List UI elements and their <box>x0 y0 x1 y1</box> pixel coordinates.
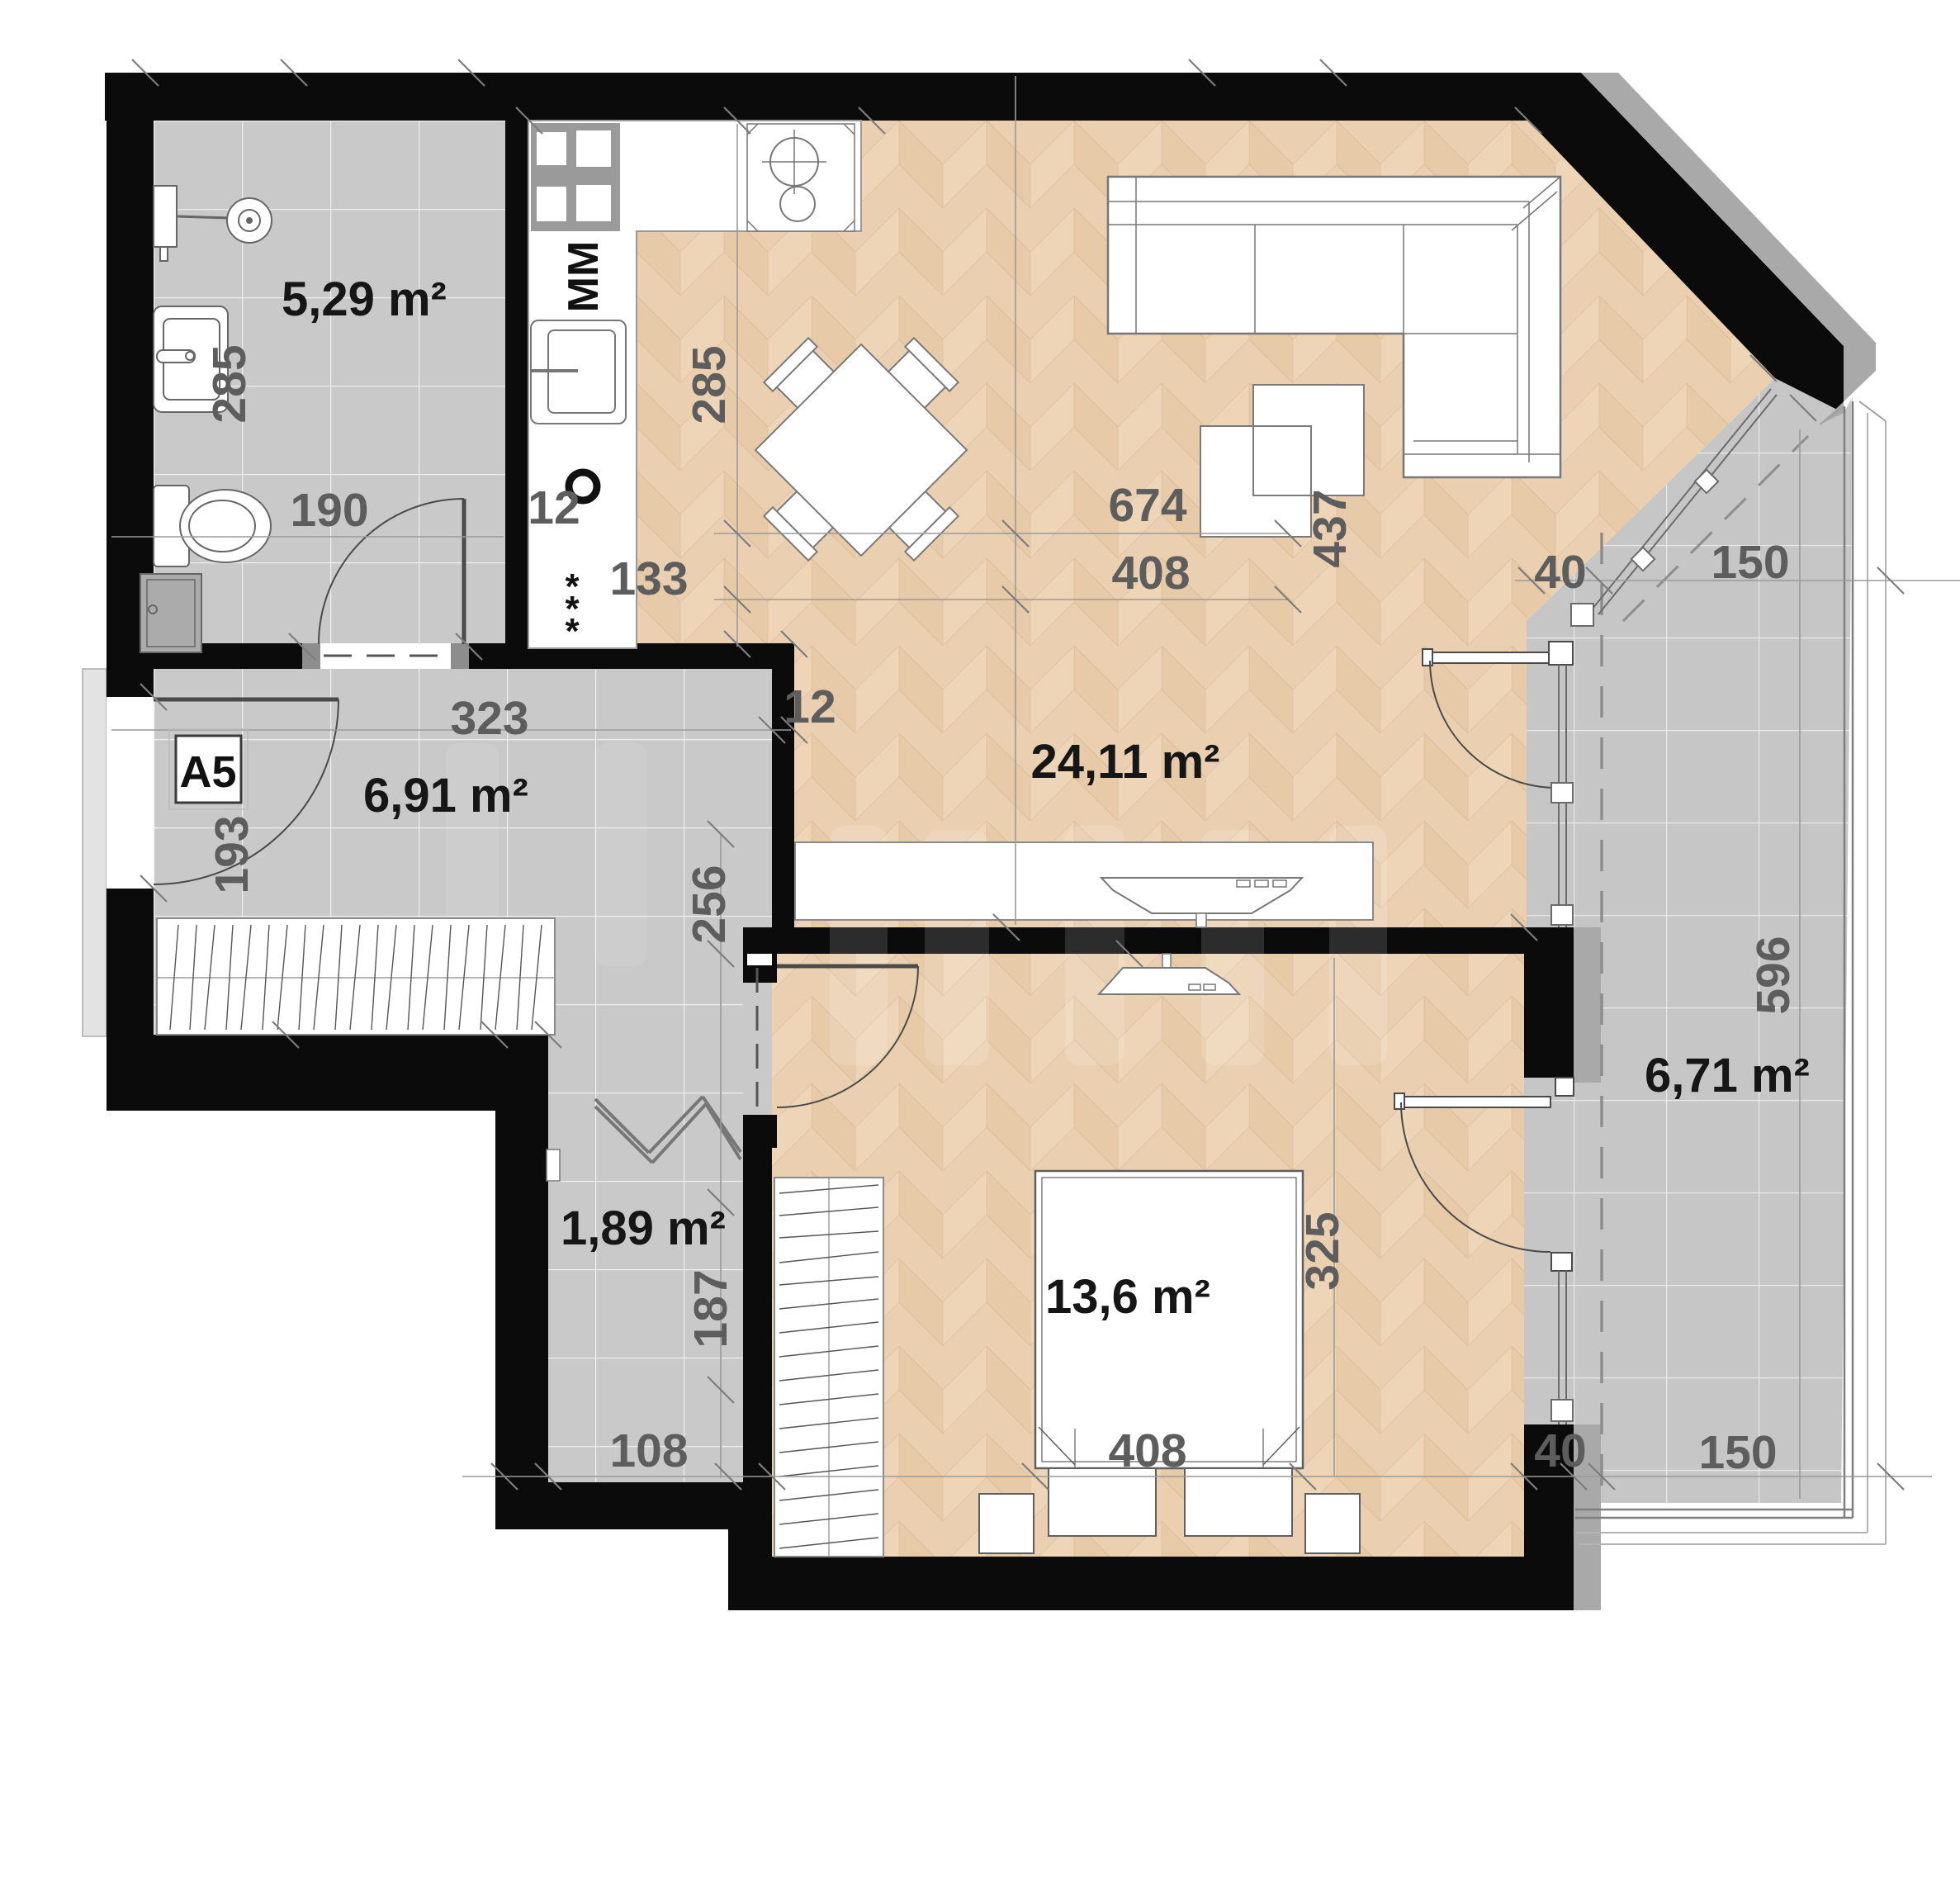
svg-text:187: 187 <box>684 1269 737 1348</box>
svg-text:596: 596 <box>1747 936 1800 1014</box>
svg-text:12: 12 <box>528 481 580 534</box>
svg-text:285: 285 <box>203 344 256 423</box>
svg-text:256: 256 <box>683 865 736 943</box>
svg-text:193: 193 <box>206 815 258 893</box>
svg-text:MM: MM <box>560 241 608 313</box>
svg-text:190: 190 <box>290 484 368 537</box>
svg-text:5,29 m²: 5,29 m² <box>282 273 447 326</box>
svg-text:323: 323 <box>450 692 528 745</box>
svg-text:6,71 m²: 6,71 m² <box>1645 1049 1810 1102</box>
svg-text:674: 674 <box>1108 479 1186 532</box>
svg-text:A5: A5 <box>179 747 236 797</box>
svg-text:133: 133 <box>609 552 688 605</box>
svg-text:325: 325 <box>1296 1211 1349 1290</box>
svg-text:*: * <box>565 611 580 652</box>
svg-text:437: 437 <box>1304 489 1356 567</box>
svg-text:40: 40 <box>1534 546 1586 599</box>
svg-text:108: 108 <box>609 1424 688 1477</box>
svg-text:24,11 m²: 24,11 m² <box>1031 735 1220 789</box>
svg-text:6,91 m²: 6,91 m² <box>363 769 528 822</box>
svg-text:150: 150 <box>1711 536 1789 589</box>
svg-text:1,89 m²: 1,89 m² <box>561 1202 726 1255</box>
svg-text:408: 408 <box>1111 547 1190 600</box>
svg-text:40: 40 <box>1534 1424 1586 1477</box>
svg-text:13,6 m²: 13,6 m² <box>1045 1270 1210 1324</box>
svg-text:12: 12 <box>784 680 836 733</box>
svg-text:150: 150 <box>1698 1426 1777 1479</box>
svg-text:285: 285 <box>683 345 736 424</box>
svg-text:408: 408 <box>1108 1424 1186 1477</box>
